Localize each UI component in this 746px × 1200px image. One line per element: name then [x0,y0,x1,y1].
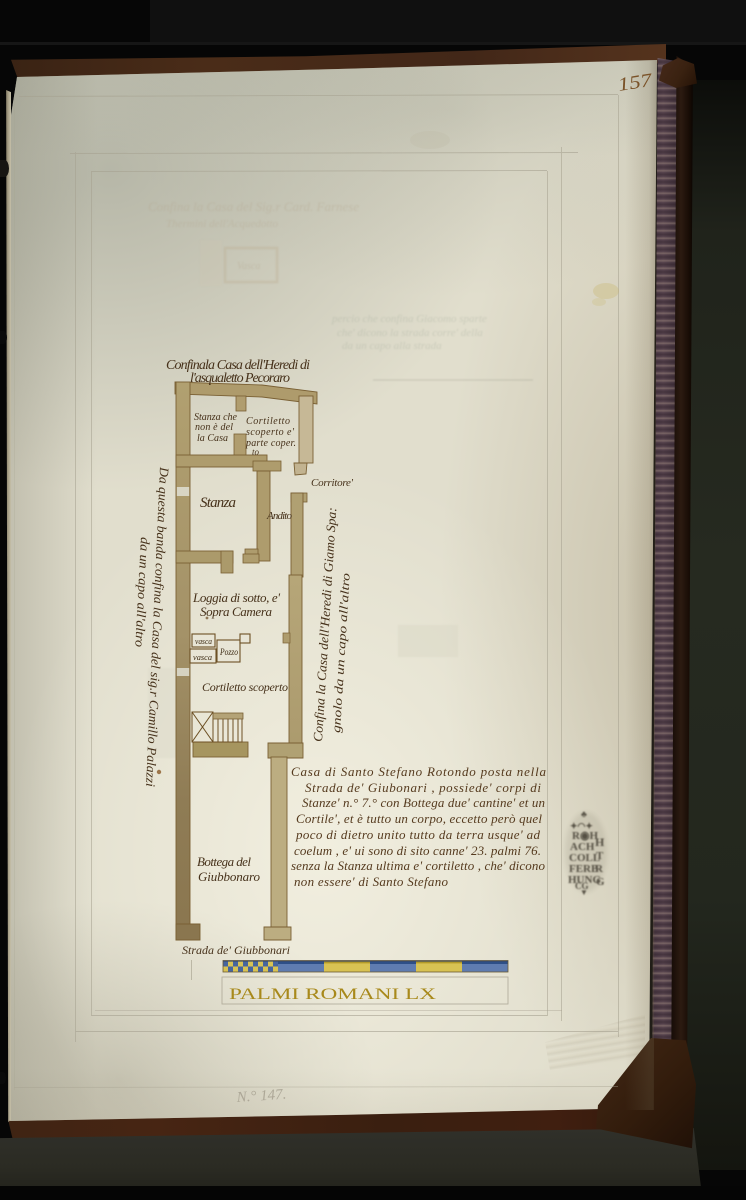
svg-text:G: G [596,876,605,888]
svg-text:Andito: Andito [266,510,293,522]
svg-text:non è del: non è del [195,422,233,433]
svg-text:Confina la Casa del Sig.r Card: Confina la Casa del Sig.r Card. Farnese [148,199,359,214]
svg-text:Cortiletto: Cortiletto [246,416,290,427]
svg-text:scoperto e': scoperto e' [246,427,295,438]
svg-text:Stanza: Stanza [200,495,236,511]
svg-text:Pozzo: Pozzo [219,647,238,657]
svg-text:Sopra Camera: Sopra Camera [200,604,273,619]
svg-text:Thermini dell'Acquedotto: Thermini dell'Acquedotto [166,218,279,230]
svg-text:senza la Stanza ultima e' cort: senza la Stanza ultima e' cortiletto , c… [291,858,546,873]
svg-text:▼: ▼ [580,888,588,897]
svg-text:♣: ♣ [581,809,587,819]
svg-text:Cortile', et è tutto un corpo,: Cortile', et è tutto un corpo, eccetto p… [296,811,542,826]
svg-text:N.° 147.: N.° 147. [235,1087,287,1107]
svg-text:la Casa: la Casa [197,433,228,444]
svg-text:H: H [595,835,605,849]
svg-text:Cortiletto scoperto: Cortiletto scoperto [202,680,288,694]
svg-text:vasca: vasca [195,637,212,646]
svg-text:Strada de' Giubbonari: Strada de' Giubbonari [182,943,290,957]
svg-text:R: R [595,863,604,875]
svg-text:Vasca: Vasca [237,261,260,272]
svg-text:non essere' di Santo Stefano: non essere' di Santo Stefano [294,874,449,889]
svg-text:157: 157 [616,70,655,96]
svg-text:coelum , e' ui sono di sito ca: coelum , e' ui sono di sito canne' 23. p… [294,843,541,858]
svg-text:Bottega del: Bottega del [197,854,251,869]
svg-text:poco di dietro unito tutto da: poco di dietro unito tutto da terra usqu… [295,827,541,842]
svg-text:l'asqualetto Pecoraro: l'asqualetto Pecoraro [190,371,290,386]
svg-text:PALMI ROMANI LX: PALMI ROMANI LX [229,986,437,1003]
svg-text:da un capo alla strada: da un capo alla strada [342,340,442,352]
svg-text:percio che confina Giacomo spa: percio che confina Giacomo sparte [331,313,487,325]
svg-text:to: to [252,447,260,457]
svg-text:T: T [596,850,604,862]
svg-text:che' dicono la strada corre' d: che' dicono la strada corre' della [337,327,483,339]
svg-text:Giubbonaro: Giubbonaro [198,869,261,884]
svg-text:Casa di Santo Stefano Rotondo: Casa di Santo Stefano Rotondo posta nell… [291,764,547,779]
svg-text:Corritore': Corritore' [311,477,354,489]
svg-text:vasca: vasca [193,653,212,662]
svg-text:Stanze' n.° 7.° con Bottega du: Stanze' n.° 7.° con Bottega due' cantine… [302,795,545,810]
svg-text:Strada de' Giubonari , possied: Strada de' Giubonari , possiede' corpi d… [305,780,541,795]
svg-text:Loggia di sotto, e': Loggia di sotto, e' [192,590,280,605]
